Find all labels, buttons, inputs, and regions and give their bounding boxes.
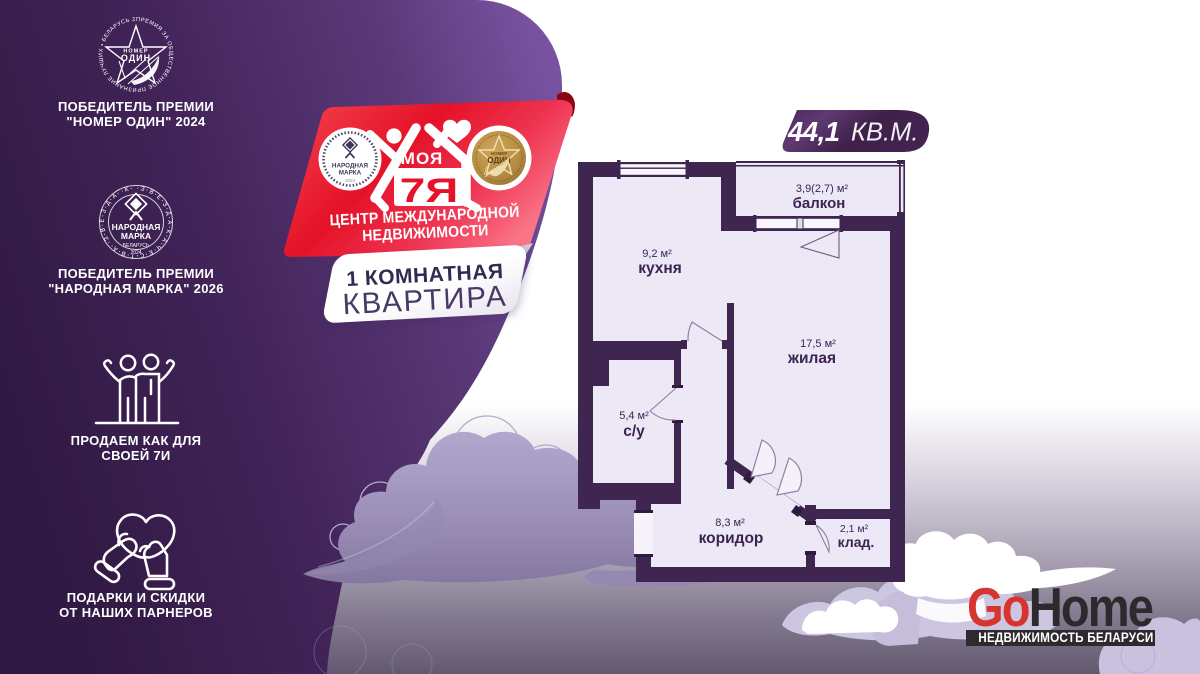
svg-text:5,4 м²: 5,4 м² <box>619 410 649 422</box>
svg-text:9,2 м²: 9,2 м² <box>642 248 672 260</box>
svg-text:44,1: 44,1 <box>787 116 840 147</box>
svg-text:ОДИН: ОДИН <box>121 53 151 63</box>
svg-text:17,5 м²: 17,5 м² <box>800 338 836 350</box>
svg-text:балкон: балкон <box>793 195 846 212</box>
svg-text:МАРКА: МАРКА <box>339 170 362 177</box>
svg-text:НАРОДНАЯ: НАРОДНАЯ <box>332 163 369 170</box>
svg-text:БЕЛАРУСЬ: БЕЛАРУСЬ <box>123 243 150 249</box>
svg-text:клад.: клад. <box>838 534 875 550</box>
svg-text:3,9(2,7) м²: 3,9(2,7) м² <box>796 183 849 195</box>
svg-text:8,3 м²: 8,3 м² <box>715 517 745 529</box>
svg-text:2024: 2024 <box>130 250 141 256</box>
svg-text:МАРКА: МАРКА <box>121 231 151 241</box>
svg-text:с/у: с/у <box>623 423 645 440</box>
svg-text:2024: 2024 <box>345 178 356 183</box>
svg-text:кухня: кухня <box>638 260 682 277</box>
svg-text:КВ.М.: КВ.М. <box>851 119 918 147</box>
svg-text:коридор: коридор <box>699 530 764 547</box>
svg-text:МОЯ: МОЯ <box>401 149 443 168</box>
svg-text:жилая: жилая <box>787 350 836 367</box>
svg-text:7Я: 7Я <box>400 171 459 210</box>
